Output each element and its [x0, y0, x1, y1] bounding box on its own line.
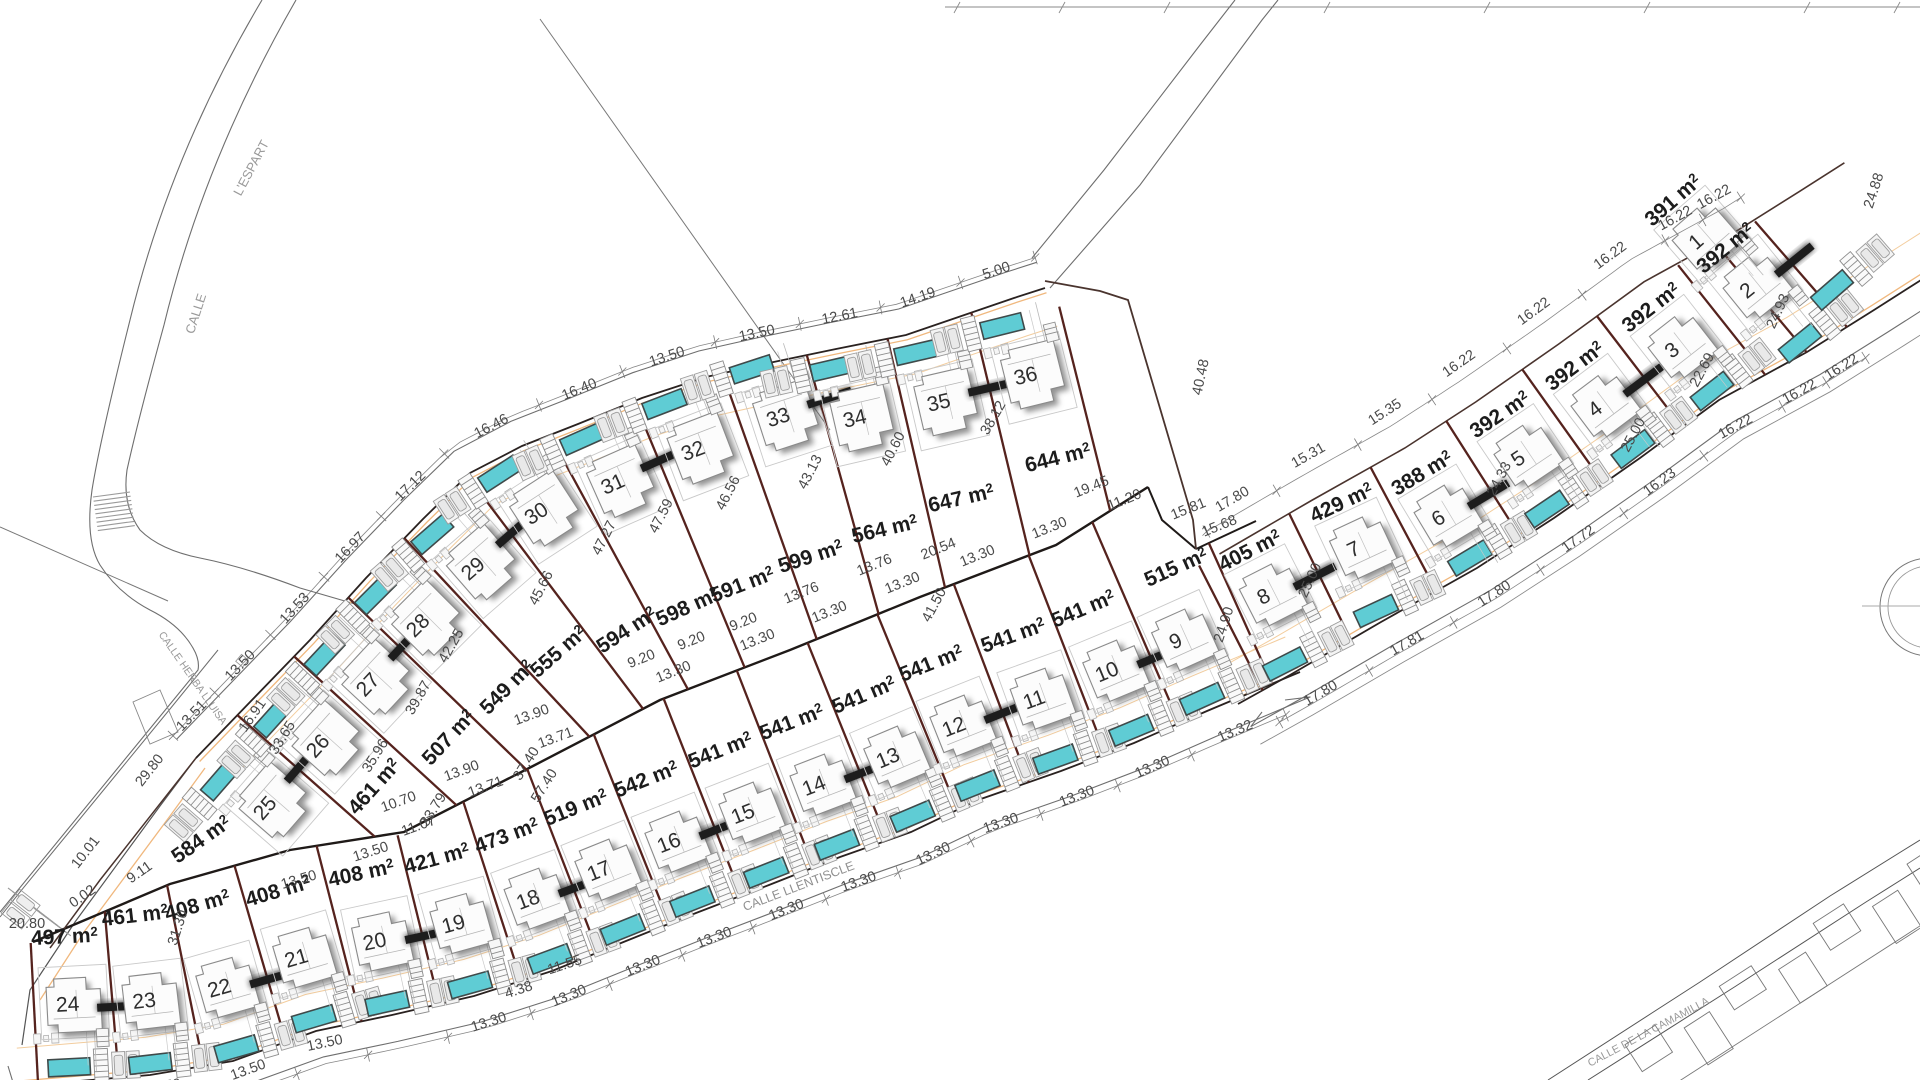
svg-text:20.80: 20.80 — [9, 916, 45, 932]
svg-text:23: 23 — [131, 988, 157, 1014]
svg-text:24: 24 — [55, 993, 80, 1017]
svg-text:20: 20 — [361, 928, 389, 955]
